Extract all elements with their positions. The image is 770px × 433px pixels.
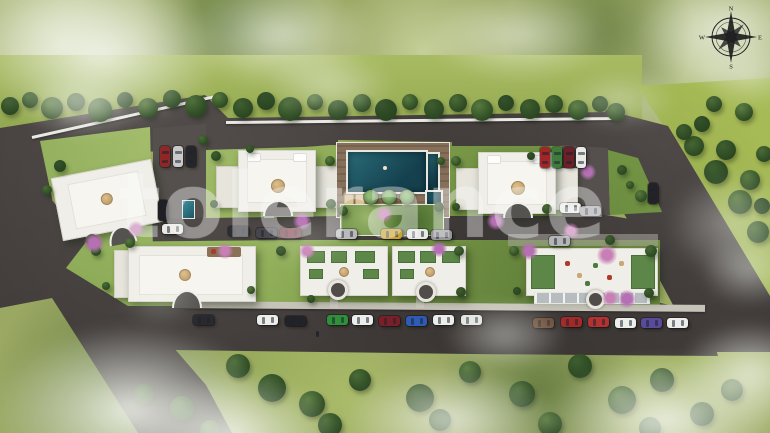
rooftop-furniture <box>619 261 624 266</box>
roof-garden-bed <box>631 255 655 289</box>
rooftop-furniture <box>593 263 598 268</box>
spiral-stair <box>586 290 605 309</box>
compass-south-label: S <box>729 64 733 71</box>
rooftop-furniture <box>565 261 570 266</box>
compass-rose-icon: N E S W <box>698 4 764 70</box>
compass-east-label: E <box>758 35 762 42</box>
rooftop-table <box>179 269 191 281</box>
spiral-stair <box>328 280 348 300</box>
watermark-text: tolerance <box>118 162 607 252</box>
roof-garden-bed <box>363 269 379 279</box>
roof-upper <box>139 255 243 295</box>
rooftop-furniture <box>577 273 582 278</box>
pedestrian <box>316 331 319 337</box>
compass-west-label: W <box>699 35 706 42</box>
aerial-site-plan: tolerance N E S W <box>0 0 770 433</box>
rooftop-furniture <box>585 281 590 286</box>
spiral-stair <box>416 282 436 302</box>
rooftop-table <box>425 267 435 277</box>
compass-north-label: N <box>729 6 734 13</box>
roof-garden-bed <box>400 269 414 279</box>
roof-garden-bed <box>309 269 323 279</box>
rooftop-furniture <box>607 275 612 280</box>
roof-garden-bed <box>531 255 555 289</box>
rooftop-table <box>339 267 349 277</box>
